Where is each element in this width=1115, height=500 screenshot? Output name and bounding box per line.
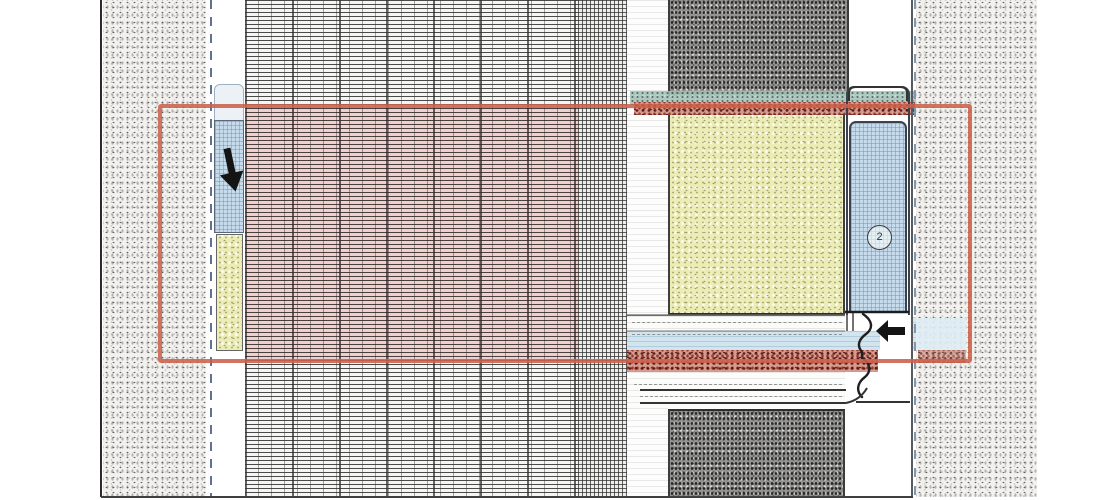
left-wall-edge-line [100,0,102,497]
section-drawing: 2 [0,0,1115,500]
flashing-dash-row [640,396,842,397]
upper-dark-infill-block [668,0,849,96]
flashing-dash-row [634,384,842,385]
lower-dark-infill-block [668,409,845,497]
detail-highlight-box [158,104,972,363]
bottom-joint-lower-band [627,372,845,408]
